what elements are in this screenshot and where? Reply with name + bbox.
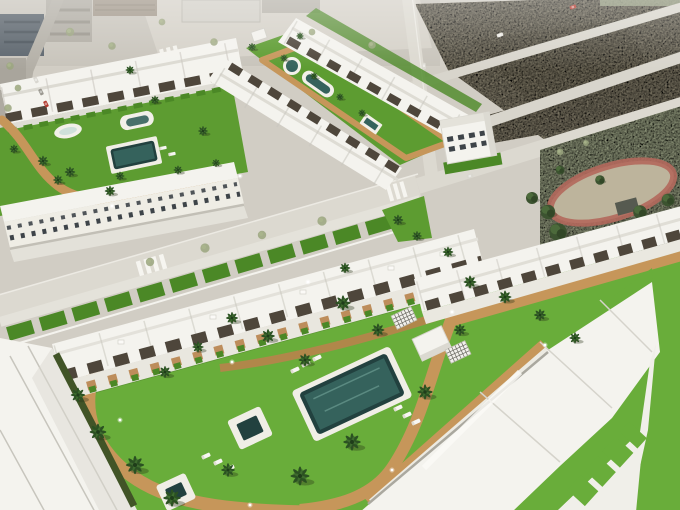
lamp <box>109 203 114 208</box>
lamp <box>247 502 252 507</box>
lamp <box>449 309 454 314</box>
lamp <box>237 173 242 178</box>
street-tree <box>200 243 209 252</box>
street-tree <box>583 140 589 146</box>
street-tree <box>258 231 266 239</box>
aerial-render-viewport <box>0 0 680 510</box>
street-tree <box>317 216 326 225</box>
aerial-render <box>0 0 680 510</box>
street-tree <box>15 85 22 92</box>
lamp <box>389 467 394 472</box>
street-tree <box>146 258 154 266</box>
photo-fade-overlay <box>0 0 680 70</box>
lamp <box>117 417 122 422</box>
street-tree <box>557 149 564 156</box>
lamp <box>305 279 310 284</box>
street-tree <box>4 104 12 112</box>
lamp <box>542 342 547 347</box>
lamp <box>229 359 234 364</box>
